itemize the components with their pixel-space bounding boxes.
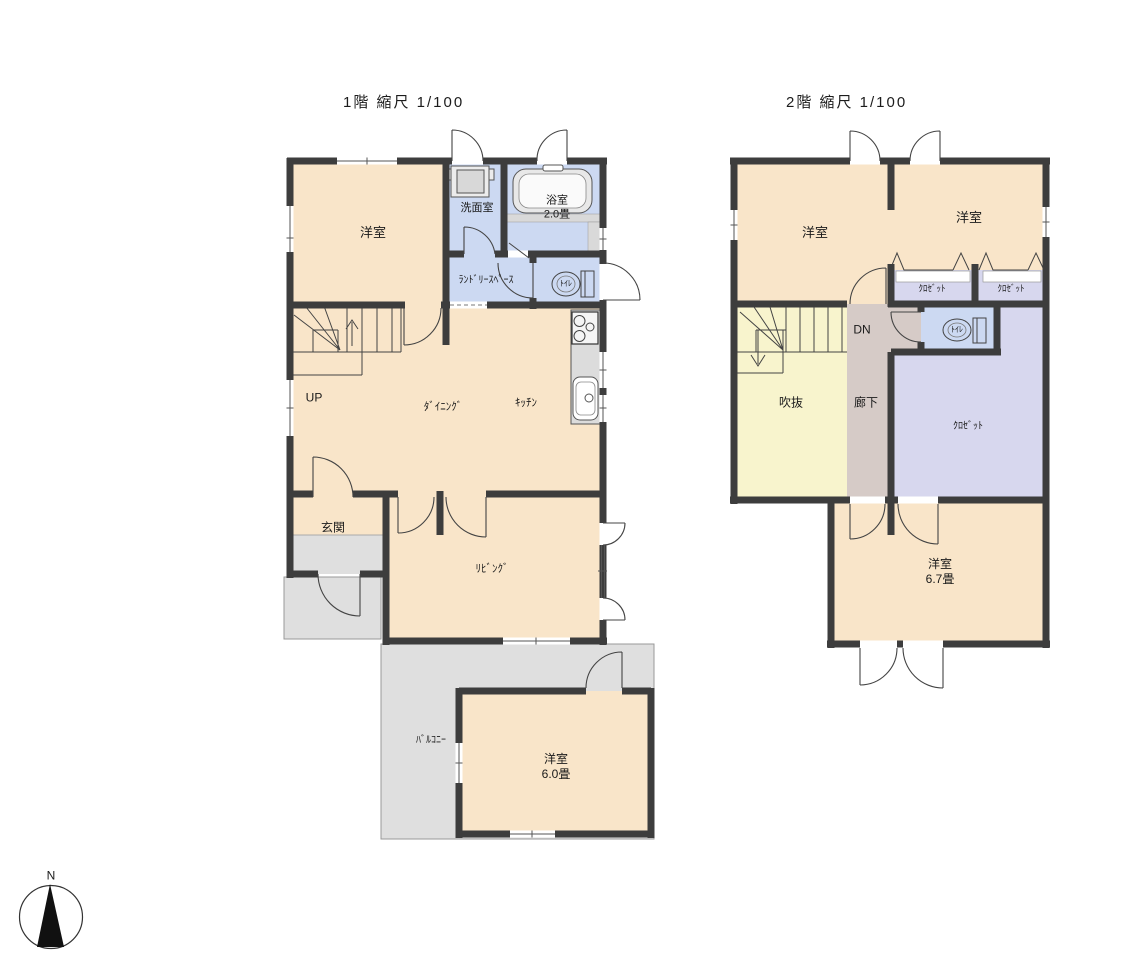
room-label-fukinuke: 吹抜 bbox=[779, 396, 803, 411]
room-label-kitchen: ｷｯﾁﾝ bbox=[515, 397, 537, 411]
floor2-title: 2階 縮尺 1/100 bbox=[786, 91, 907, 112]
kitchen-counter-icon bbox=[571, 310, 600, 424]
room-label-closet2: ｸﾛｾﾞｯﾄ bbox=[997, 283, 1024, 294]
floor1-plan bbox=[270, 120, 680, 860]
stairs-up-label: UP bbox=[306, 391, 323, 406]
room-label-balcony: ﾊﾞﾙｺﾆｰ bbox=[416, 735, 446, 748]
room-label-living: ﾘﾋﾞﾝｸﾞ bbox=[476, 563, 509, 577]
floorplan-page: 1階 縮尺 1/100 2階 縮尺 1/100 bbox=[0, 0, 1139, 960]
room-label-closet1: ｸﾛｾﾞｯﾄ bbox=[918, 283, 945, 294]
room-label-dining: ﾀﾞｲﾆﾝｸﾞ bbox=[424, 401, 463, 415]
floor2-plan bbox=[715, 120, 1065, 700]
washing-machine-icon bbox=[446, 166, 494, 197]
room-label-toilet-2f: ﾄｲﾚ bbox=[951, 325, 963, 335]
room-label-yokushitsu: 浴室 2.0畳 bbox=[544, 194, 570, 222]
stairs-down-label: DN bbox=[853, 323, 870, 338]
room-label-genkan: 玄関 bbox=[321, 521, 345, 536]
stove-icon bbox=[572, 312, 598, 344]
room-label-youshitsu2: 洋室 6.0畳 bbox=[542, 752, 571, 782]
room-label-youshitsu-2f-right: 洋室 bbox=[956, 210, 982, 226]
room-label-laundry: ﾗﾝﾄﾞﾘｰｽﾍﾟｰｽ bbox=[459, 275, 514, 288]
room-label-youshitsu-b: 洋室 6.7畳 bbox=[926, 557, 955, 587]
room-label-toilet-1f: ﾄｲﾚ bbox=[560, 279, 572, 289]
room-label-rouka: 廊下 bbox=[854, 396, 878, 411]
room-label-closet-big: ｸﾛｾﾞｯﾄ bbox=[953, 421, 983, 434]
floor1-room-fills bbox=[284, 161, 654, 839]
room-label-youshitsu-2f-left: 洋室 bbox=[802, 225, 828, 241]
sink-icon bbox=[573, 377, 598, 420]
room-label-youshitsu-1f: 洋室 bbox=[360, 225, 386, 241]
compass-icon bbox=[15, 855, 125, 960]
compass-north-label: N bbox=[47, 869, 56, 884]
room-label-senmenshitsu: 洗面室 bbox=[461, 202, 494, 216]
floor1-title: 1階 縮尺 1/100 bbox=[343, 91, 464, 112]
